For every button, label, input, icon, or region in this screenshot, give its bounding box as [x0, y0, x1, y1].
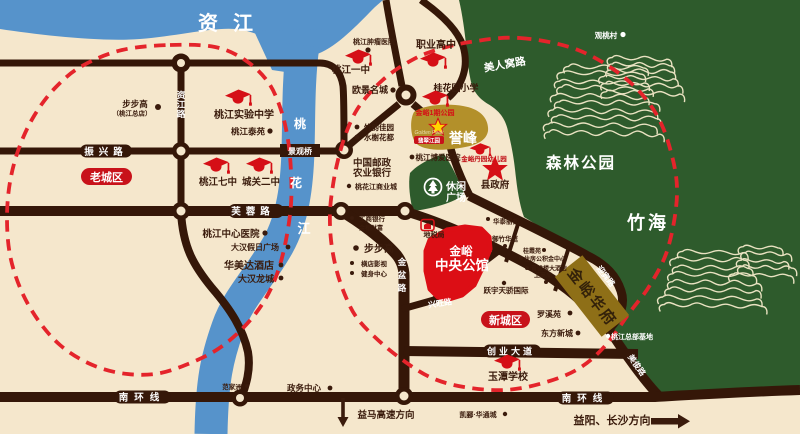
svg-text:桃: 桃	[294, 116, 306, 131]
svg-text:路: 路	[177, 109, 186, 119]
svg-text:晋骏楼大酒店: 晋骏楼大酒店	[531, 265, 567, 273]
svg-text:政务中心: 政务中心	[287, 383, 322, 393]
svg-text:桃江实验中学: 桃江实验中学	[214, 108, 274, 121]
svg-text:竹韵佳园: 竹韵佳园	[363, 122, 394, 132]
svg-text:金峪: 金峪	[449, 244, 473, 258]
svg-text:步步高: 步步高	[364, 242, 394, 255]
svg-text:凯郦·华通城: 凯郦·华通城	[459, 410, 496, 419]
svg-text:罗溪苑: 罗溪苑	[537, 309, 561, 319]
svg-text:南环线: 南环线	[562, 393, 609, 405]
svg-text:江: 江	[297, 221, 310, 236]
svg-text:桃江博爱医院: 桃江博爱医院	[416, 152, 461, 162]
svg-text:玉潭学校: 玉潭学校	[488, 370, 529, 383]
svg-text:（桃江总店）: （桃江总店）	[113, 109, 152, 118]
svg-text:竹海: 竹海	[626, 212, 669, 233]
svg-text:金穗财富: 金穗财富	[358, 224, 383, 232]
svg-text:工商局: 工商局	[534, 272, 552, 280]
svg-text:景观桥: 景观桥	[288, 146, 313, 156]
svg-text:新城区: 新城区	[489, 313, 522, 327]
svg-text:广场: 广场	[446, 191, 466, 204]
svg-text:职业高中: 职业高中	[416, 38, 456, 51]
svg-text:桃江中心医院: 桃江中心医院	[202, 228, 260, 240]
svg-text:森林公园: 森林公园	[546, 153, 616, 172]
svg-text:创业大道: 创业大道	[486, 346, 535, 357]
svg-text:桃花江商业城: 桃花江商业城	[355, 182, 397, 191]
svg-text:振兴路: 振兴路	[84, 146, 128, 158]
svg-text:路: 路	[398, 283, 407, 293]
svg-text:南环线: 南环线	[119, 392, 166, 404]
svg-text:大汉龙城: 大汉龙城	[238, 273, 274, 284]
svg-text:桃江总部基地: 桃江总部基地	[611, 332, 653, 341]
svg-text:花: 花	[290, 175, 302, 190]
svg-text:华美达酒店: 华美达酒店	[224, 259, 274, 272]
svg-text:益阳、长沙方向: 益阳、长沙方向	[574, 413, 651, 427]
svg-text:金峪1期公园: 金峪1期公园	[415, 108, 455, 117]
svg-text:金峪丹园幼儿园: 金峪丹园幼儿园	[460, 154, 507, 163]
svg-text:芙蓉路: 芙蓉路	[230, 206, 275, 218]
svg-text:农业银行: 农业银行	[352, 167, 392, 179]
svg-text:桃江七中: 桃江七中	[199, 176, 237, 188]
svg-text:Golden Peak: Golden Peak	[415, 130, 444, 136]
svg-text:步步高: 步步高	[122, 99, 148, 109]
svg-text:观桃村: 观桃村	[595, 30, 618, 40]
svg-text:翡翠江园: 翡翠江园	[418, 137, 441, 145]
svg-text:县政府: 县政府	[481, 179, 510, 191]
svg-text:资江: 资江	[198, 11, 268, 35]
svg-text:誉峰: 誉峰	[449, 130, 478, 146]
svg-text:桃江肿瘤医院: 桃江肿瘤医院	[353, 37, 395, 46]
svg-text:横店影视: 横店影视	[361, 259, 388, 268]
svg-text:桃江一中: 桃江一中	[332, 64, 370, 76]
svg-text:东方新城: 东方新城	[541, 328, 573, 338]
svg-text:欧景名城: 欧景名城	[352, 84, 388, 95]
svg-text:中央公馆: 中央公馆	[435, 257, 489, 273]
svg-text:盆: 盆	[397, 270, 407, 280]
svg-text:桂花园小学: 桂花园小学	[432, 82, 478, 93]
svg-text:桂霞苑: 桂霞苑	[522, 247, 541, 255]
svg-text:老城区: 老城区	[89, 170, 123, 184]
svg-text:地税局: 地税局	[424, 230, 445, 239]
svg-text:资: 资	[177, 90, 186, 100]
svg-text:金: 金	[397, 257, 407, 267]
svg-text:城关二中: 城关二中	[242, 176, 280, 188]
svg-text:江: 江	[177, 100, 186, 110]
svg-text:休闲: 休闲	[445, 180, 466, 193]
svg-text:健身中心: 健身中心	[361, 269, 388, 278]
svg-text:御竹华庭: 御竹华庭	[491, 234, 519, 243]
svg-text:桃江泰苑: 桃江泰苑	[231, 127, 266, 137]
svg-text:住房公积金中心: 住房公积金中心	[524, 255, 566, 263]
svg-text:华泰丽都: 华泰丽都	[493, 217, 520, 226]
svg-text:跃宇天骄国际: 跃宇天骄国际	[484, 285, 529, 295]
svg-text:益马高速方向: 益马高速方向	[357, 409, 414, 421]
svg-text:工商银行: 工商银行	[359, 214, 386, 223]
svg-text:范家洲: 范家洲	[222, 382, 242, 391]
svg-text:大汉假日广场: 大汉假日广场	[231, 242, 279, 252]
svg-text:水榭花都: 水榭花都	[364, 132, 394, 142]
